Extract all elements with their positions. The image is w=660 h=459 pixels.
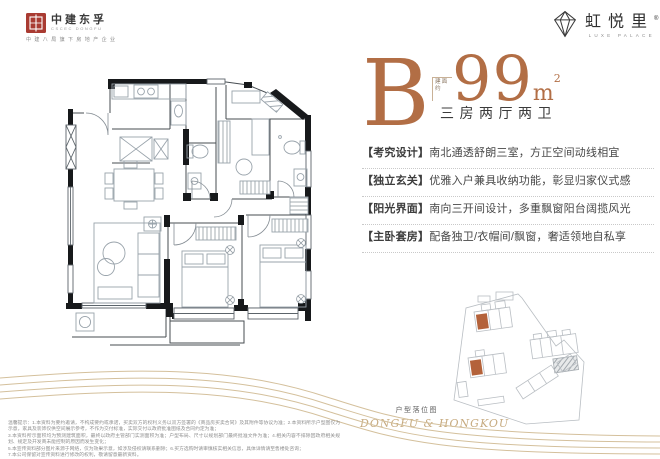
symbol-master-1 <box>297 239 306 248</box>
toilet-a <box>192 145 208 158</box>
stool-middle <box>236 159 252 175</box>
doors <box>86 113 294 245</box>
developer-sub: CSCEC DONGFU <box>51 26 107 32</box>
sofa <box>138 233 159 297</box>
dining-table <box>114 169 154 201</box>
developer-name: 中建东孚 <box>51 14 107 26</box>
feature-item-2: 【独立玄关】优雅入户兼具收纳功能，彰显归家仪式感 <box>362 175 654 197</box>
toilet-tank-b <box>300 141 305 154</box>
furniture <box>76 84 308 331</box>
wardrobe-middle <box>218 121 230 163</box>
bed-2 <box>182 251 228 307</box>
cabinet-topright <box>232 91 260 103</box>
brand-sub: LUXE PALACE <box>589 33 655 38</box>
developer-logo: 中建东孚 CSCEC DONGFU 中建八局旗下房地产企业 <box>26 13 156 43</box>
walls-thick <box>66 79 311 321</box>
sink-b <box>294 169 307 186</box>
unit-type-letter: B <box>362 50 430 138</box>
brand-name: 虹悦里® <box>585 10 658 31</box>
tv-cabinet <box>98 287 132 299</box>
living-rug <box>94 223 160 303</box>
feature-item-4: 【主卧套房】配备独卫/衣帽间/飘窗，奢适领地自私享 <box>362 231 654 253</box>
toilet-b <box>284 141 300 154</box>
brand-logo: 虹悦里® LUXE PALACE <box>552 10 658 38</box>
floor-plan <box>50 53 350 355</box>
disclaimer: 温馨提示：1.本资料为要约邀请，不构成要约或承诺，买卖双方的权利义务以双方签署的… <box>8 421 340 459</box>
brand-reg-mark: ® <box>654 16 658 22</box>
area-prefix: 建面约 <box>432 77 452 101</box>
feature-item-3: 【阳光界面】南向三开间设计，多重飘窗阳台阔揽风光 <box>362 203 654 225</box>
rug-middle <box>240 181 270 194</box>
wardrobe-master-side <box>290 197 308 214</box>
wardrobe-master <box>272 219 308 232</box>
washer <box>76 313 94 331</box>
kitchen-sink <box>114 86 128 97</box>
wardrobe-bed2 <box>196 227 236 240</box>
unit-rooms: 三房两厅两卫 <box>440 103 557 123</box>
developer-logo-mark-icon <box>26 13 46 33</box>
developer-tagline: 中建八局旗下房地产企业 <box>26 37 156 43</box>
symbol-bed2-2 <box>226 296 235 305</box>
diamond-gem-icon <box>552 10 578 38</box>
feature-list: 【考究设计】南北通透舒朗三室，方正空间动线相宜 【独立玄关】优雅入户兼具收纳功能… <box>362 147 654 259</box>
symbol-bed2-1 <box>226 246 235 255</box>
poster: 中建东孚 CSCEC DONGFU 中建八局旗下房地产企业 虹悦里® LUXE … <box>0 0 660 459</box>
symbol-master-2 <box>297 295 306 304</box>
coffee-table <box>103 242 125 264</box>
plan-symbols <box>226 239 306 305</box>
highlighted-unit-1 <box>476 313 489 329</box>
feature-item-1: 【考究设计】南北通透舒朗三室，方正空间动线相宜 <box>362 147 654 169</box>
bed-middle <box>252 119 269 155</box>
